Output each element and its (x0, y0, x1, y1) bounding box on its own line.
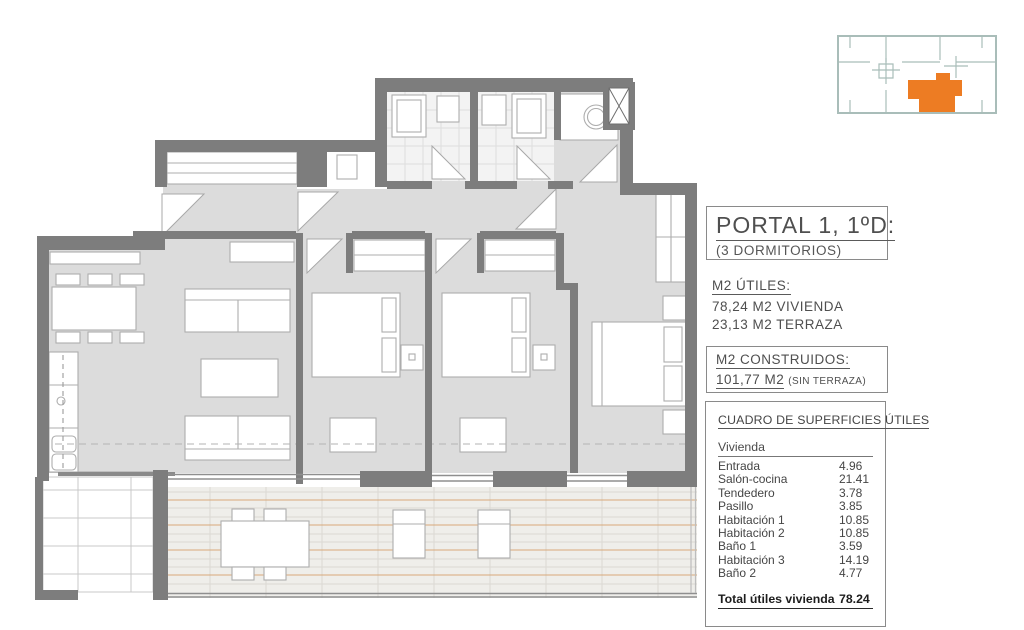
lounger (478, 510, 510, 558)
dining-table (52, 287, 136, 330)
dresser (460, 418, 506, 452)
pillow (664, 366, 682, 401)
pillow (512, 298, 526, 332)
key-plan (838, 36, 996, 113)
entry-closet (167, 152, 297, 184)
entry-shaft (337, 155, 357, 179)
faucet (57, 397, 65, 405)
pillow (664, 327, 682, 362)
living-slider-window (168, 475, 360, 480)
sideboard (230, 242, 294, 262)
dresser (330, 418, 376, 452)
nightstand (663, 296, 686, 320)
pillow (512, 338, 526, 372)
dining-set (52, 274, 144, 343)
terrace-table (221, 521, 309, 567)
pillow (382, 298, 396, 332)
neighbour-patio (43, 472, 168, 592)
nightstand (663, 410, 686, 434)
ventilation-shaft (609, 88, 629, 124)
coffee-table (201, 359, 278, 397)
pillow (382, 338, 396, 372)
lounger (393, 510, 425, 558)
floor-plan-drawing (0, 0, 1024, 630)
plan-sheet: PORTAL 1, 1ºD: (3 DORMITORIOS) M2 ÚTILES… (0, 0, 1024, 630)
sink-bowl (52, 454, 76, 470)
